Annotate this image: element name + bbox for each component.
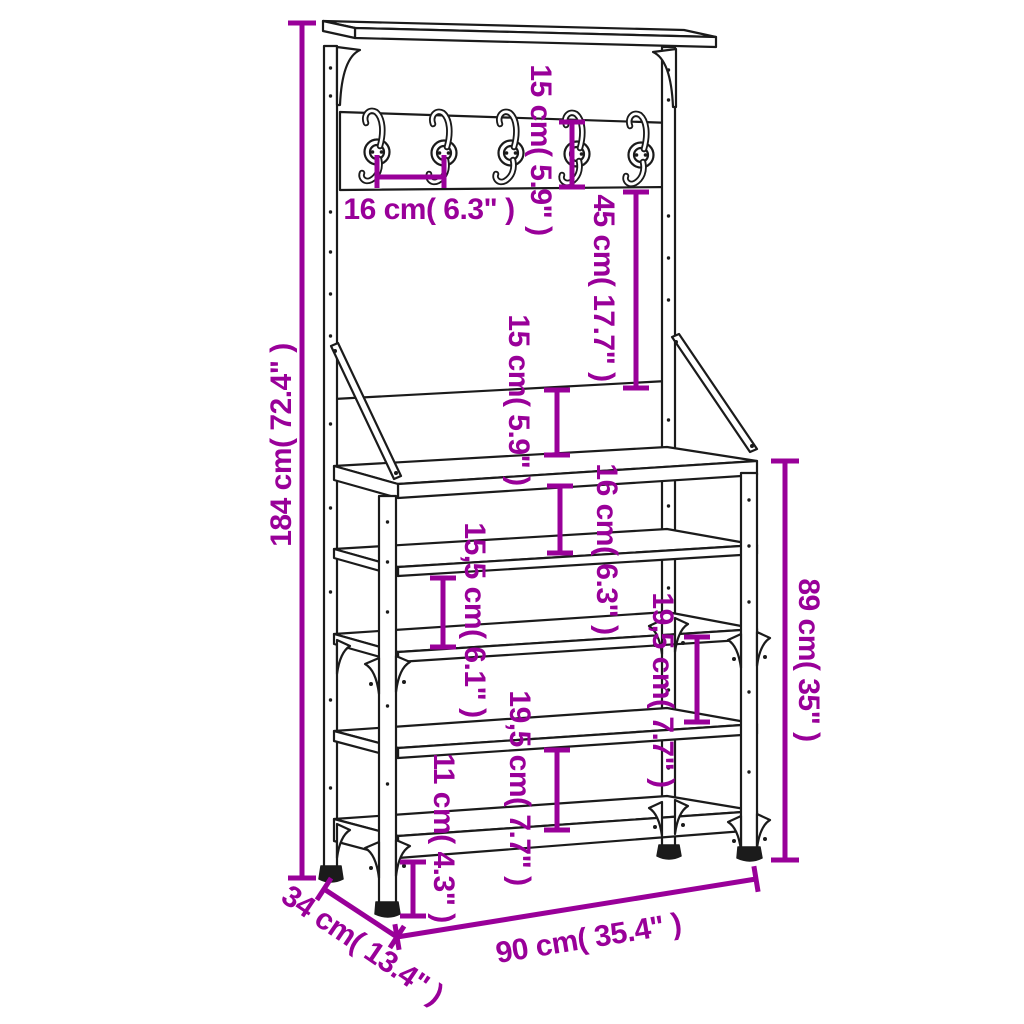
top-shelf-bracket-left bbox=[337, 47, 360, 105]
dim-label-panel-to-bench: 45 cm( 17.7" ) bbox=[587, 194, 620, 381]
foot-rear-right bbox=[657, 845, 681, 859]
dim-label-shelf-gap-center: 19,5 cm( 7.7" ) bbox=[503, 690, 536, 885]
foot-front-left bbox=[375, 902, 400, 917]
shelf-2 bbox=[334, 529, 757, 576]
front-left-leg bbox=[379, 496, 396, 904]
dim-label-shelf-gap-mid: 15,5 cm( 6.1" ) bbox=[458, 522, 491, 717]
dim-label-hook-panel-height: 15 cm( 5.9" ) bbox=[524, 64, 557, 235]
dim-label-shelf-gap-right: 19,5 cm( 7.7" ) bbox=[646, 592, 679, 787]
dimension-total-height: 184 cm( 72.4" ) bbox=[265, 23, 316, 878]
front-right-leg bbox=[741, 473, 757, 849]
dim-label-bench-to-shelf: 16 cm( 6.3" ) bbox=[590, 463, 623, 634]
furniture-dimension-diagram: 184 cm( 72.4" ) 15 cm( 5.9" ) 16 cm( 6.3… bbox=[0, 0, 1024, 1024]
dimension-rack-height: 89 cm( 35" ) bbox=[771, 461, 825, 860]
left-post bbox=[324, 46, 337, 874]
dim-label-depth: 34 cm( 13.4" ) bbox=[275, 879, 449, 1011]
dimension-panel-to-bench: 45 cm( 17.7" ) bbox=[587, 192, 649, 388]
dim-label-total-height: 184 cm( 72.4" ) bbox=[265, 343, 298, 547]
dim-label-hook-spacing: 16 cm( 6.3" ) bbox=[343, 193, 514, 226]
dim-label-rack-height: 89 cm( 35" ) bbox=[792, 578, 825, 741]
dim-label-ground-clearance: 11 cm( 4.3" ) bbox=[427, 753, 460, 923]
top-shelf bbox=[323, 21, 716, 107]
brace-right bbox=[672, 334, 757, 452]
diagram-canvas: 184 cm( 72.4" ) 15 cm( 5.9" ) 16 cm( 6.3… bbox=[0, 0, 1024, 1024]
dim-label-bench-back-height: 15 cm( 5.9" ) bbox=[502, 314, 535, 485]
dimension-depth: 34 cm( 13.4" ) bbox=[275, 878, 449, 1011]
